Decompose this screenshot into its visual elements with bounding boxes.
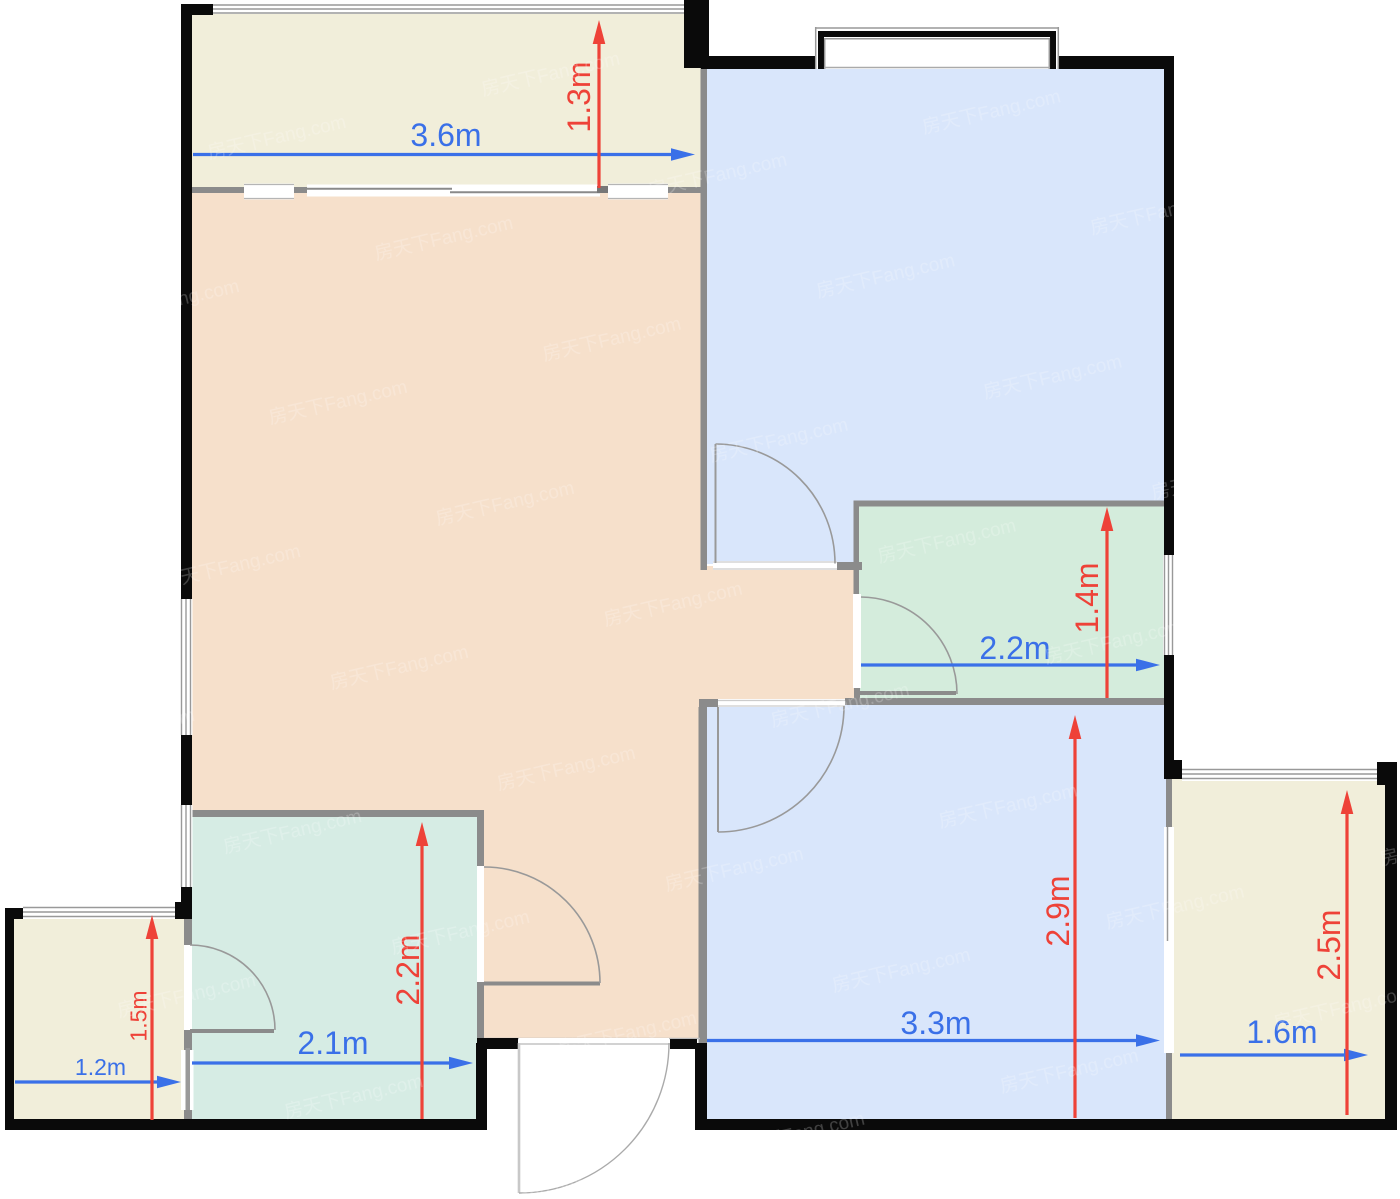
- svg-text:1.2m: 1.2m: [75, 1054, 126, 1080]
- svg-text:1.4m: 1.4m: [1069, 562, 1105, 633]
- svg-text:3.6m: 3.6m: [410, 117, 481, 153]
- svg-text:2.2m: 2.2m: [979, 630, 1050, 666]
- svg-text:3.3m: 3.3m: [900, 1005, 971, 1041]
- svg-text:2.1m: 2.1m: [297, 1025, 368, 1061]
- svg-text:2.9m: 2.9m: [1040, 875, 1076, 946]
- svg-text:2.5m: 2.5m: [1311, 909, 1347, 980]
